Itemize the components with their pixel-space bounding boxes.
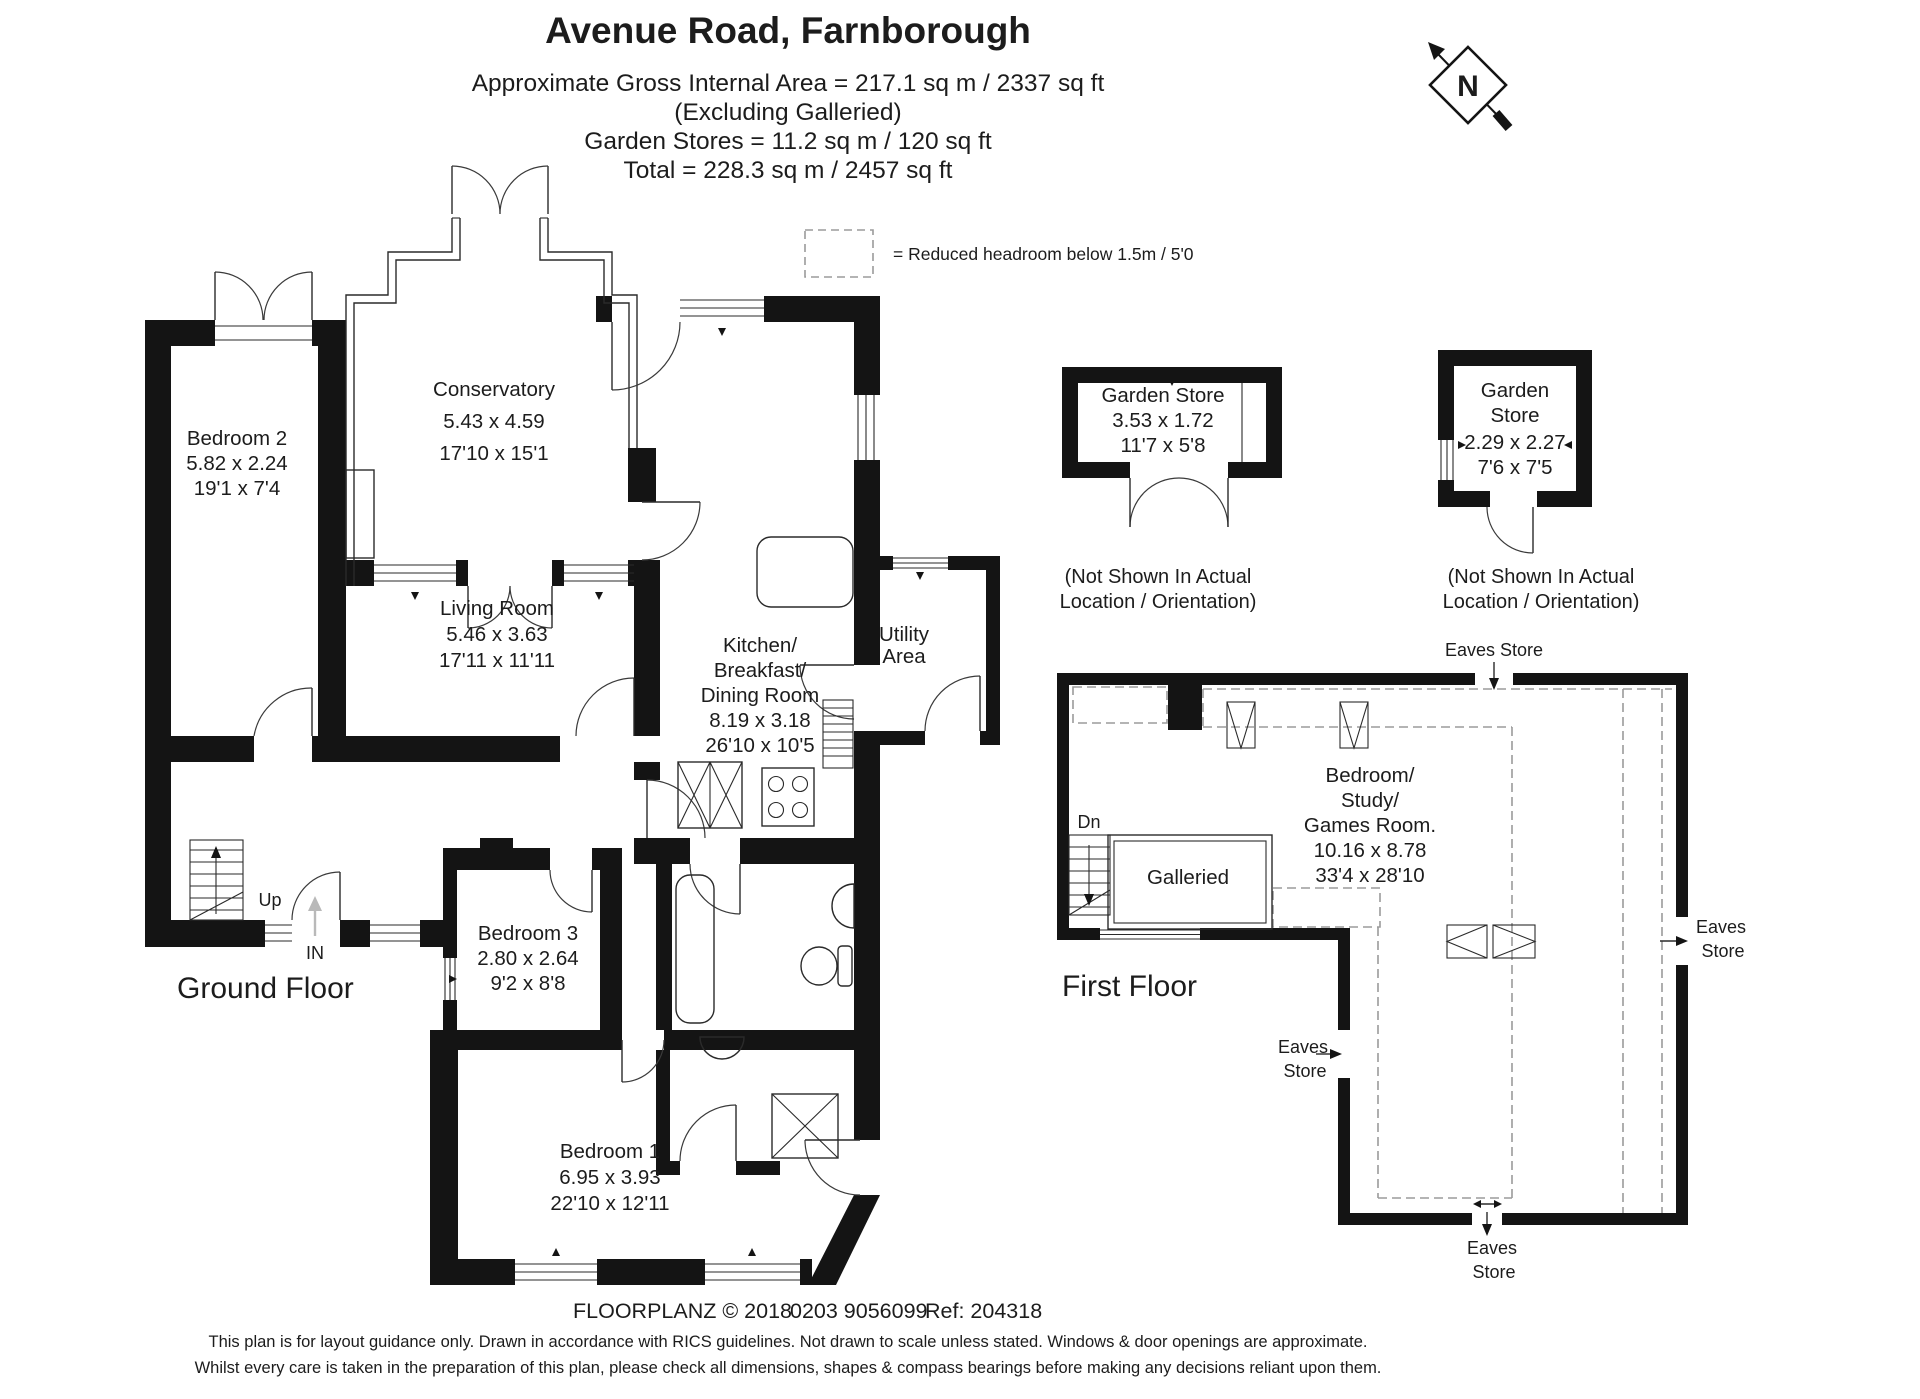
ff-room-label2: Study/ (1341, 789, 1399, 812)
first-floor-labels: Bedroom/ Study/ Games Room. 10.16 x 8.78… (1062, 640, 1746, 1282)
bedroom2-imperial: 19'1 x 7'4 (194, 477, 280, 500)
staircase-down: Dn (1069, 812, 1110, 915)
ground-floor-plan: Conservatory 5.43 x 4.59 17'10 x 15'1 Be… (145, 166, 1000, 1285)
hob (762, 768, 814, 826)
ff-room-label3: Games Room. (1304, 814, 1436, 837)
basin (832, 884, 854, 928)
page-title: Avenue Road, Farnborough (545, 10, 1031, 51)
eaves-store-right-label1: Eaves (1696, 917, 1746, 937)
bedroom1-label: Bedroom 1 (560, 1140, 660, 1163)
garden-store1-metric: 3.53 x 1.72 (1112, 409, 1213, 432)
kitchen-label3: Dining Room (701, 684, 820, 707)
bedroom2-label: Bedroom 2 (187, 427, 287, 450)
garden-store1-label: Garden Store (1101, 384, 1224, 407)
kitchen-label2: Breakfast/ (714, 659, 807, 682)
ground-floor-title: Ground Floor (177, 972, 354, 1005)
utility-label2: Area (882, 645, 926, 668)
conservatory-label: Conservatory (433, 378, 556, 401)
garden-store-1: Garden Store 3.53 x 1.72 11'7 x 5'8 (Not… (1060, 367, 1282, 613)
first-floor-plan: Galleried Dn Bedroom/ (1057, 640, 1746, 1282)
counter (823, 700, 853, 768)
north-compass-icon: N (1428, 42, 1509, 128)
kitchen-fixtures (678, 537, 853, 828)
garden-stores-line: Garden Stores = 11.2 sq m / 120 sq ft (584, 128, 992, 155)
gross-area-line: Approximate Gross Internal Area = 217.1 … (472, 70, 1105, 97)
bedroom2-metric: 5.82 x 2.24 (186, 452, 287, 475)
kitchen-imperial: 26'10 x 10'5 (705, 734, 814, 757)
store2-caption2: Location / Orientation) (1443, 591, 1640, 613)
conservatory-metric: 5.43 x 4.59 (443, 410, 544, 433)
eaves-store-bottom-label1: Eaves (1467, 1238, 1517, 1258)
first-floor-walls (1057, 673, 1688, 1225)
excluding-line: (Excluding Galleried) (674, 99, 901, 126)
living-room-imperial: 17'11 x 11'11 (439, 649, 555, 672)
living-room-label: Living Room (440, 597, 554, 620)
footer: FLOORPLANZ © 2018 0203 9056099 Ref: 2043… (195, 1299, 1382, 1377)
utility-label1: Utility (879, 623, 930, 646)
dining-table (757, 537, 853, 607)
title-block: Avenue Road, Farnborough Approximate Gro… (472, 10, 1105, 184)
conservatory-imperial: 17'10 x 15'1 (439, 442, 548, 465)
disclaimer-line1: This plan is for layout guidance only. D… (209, 1333, 1368, 1351)
store1-caption2: Location / Orientation) (1060, 591, 1257, 613)
garden-store1-imperial: 11'7 x 5'8 (1121, 434, 1206, 457)
garden-store-2: Garden Store 2.29 x 2.27 7'6 x 7'5 (Not … (1438, 350, 1639, 613)
legend-dashed-box (805, 230, 873, 277)
dn-label: Dn (1077, 812, 1100, 832)
kitchen-metric: 8.19 x 3.18 (709, 709, 810, 732)
entrance-arrow-icon (308, 896, 322, 936)
staircase-up (190, 840, 243, 920)
garden-store2-label2: Store (1491, 404, 1540, 427)
disclaimer-line2: Whilst every care is taken in the prepar… (195, 1359, 1382, 1377)
total-line: Total = 228.3 sq m / 2457 sq ft (624, 157, 953, 184)
credit-phone: 0203 9056099 (790, 1299, 928, 1323)
credit-ref: Ref: 204318 (925, 1299, 1042, 1323)
first-floor-title: First Floor (1062, 970, 1197, 1003)
ground-floor-labels: Conservatory 5.43 x 4.59 17'10 x 15'1 Be… (177, 378, 930, 1215)
bedroom1-metric: 6.95 x 3.93 (559, 1166, 660, 1189)
floorplan-page: Avenue Road, Farnborough Approximate Gro… (0, 0, 1920, 1399)
living-room-metric: 5.46 x 3.63 (446, 623, 547, 646)
ff-room-label1: Bedroom/ (1326, 764, 1415, 787)
toilet (801, 947, 837, 985)
garden-store2-metric: 2.29 x 2.27 (1464, 431, 1565, 454)
eaves-store-right-label2: Store (1701, 941, 1744, 961)
eaves-store-left-label1: Eaves (1278, 1037, 1328, 1057)
eaves-store-top-label: Eaves Store (1445, 640, 1543, 660)
north-label: N (1457, 70, 1479, 103)
eaves-store-left-label2: Store (1283, 1061, 1326, 1081)
garden-store2-imperial: 7'6 x 7'5 (1477, 456, 1552, 479)
ff-room-metric: 10.16 x 8.78 (1314, 839, 1427, 862)
credit-brand: FLOORPLANZ © 2018 (573, 1299, 792, 1323)
bedroom3-imperial: 9'2 x 8'8 (490, 972, 565, 995)
bedroom3-metric: 2.80 x 2.64 (477, 947, 578, 970)
bath (676, 875, 714, 1023)
bedroom1-imperial: 22'10 x 12'11 (550, 1192, 669, 1215)
reduced-headroom-legend: = Reduced headroom below 1.5m / 5'0 (805, 230, 1194, 277)
bedroom3-label: Bedroom 3 (478, 922, 578, 945)
ff-room-imperial: 33'4 x 28'10 (1315, 864, 1424, 887)
store1-caption1: (Not Shown In Actual (1065, 566, 1252, 588)
up-label: Up (258, 890, 281, 910)
store2-caption1: (Not Shown In Actual (1448, 566, 1635, 588)
kitchen-label1: Kitchen/ (723, 634, 797, 657)
garden-store2-label1: Garden (1481, 379, 1549, 402)
legend-text: = Reduced headroom below 1.5m / 5'0 (893, 244, 1194, 264)
conservatory-glass-walls (346, 166, 637, 586)
in-label: IN (306, 943, 324, 963)
galleried-label: Galleried (1147, 866, 1229, 889)
eaves-arrows (1316, 662, 1688, 1236)
galleried-void: Galleried (1108, 835, 1272, 929)
eaves-store-bottom-label2: Store (1472, 1262, 1515, 1282)
